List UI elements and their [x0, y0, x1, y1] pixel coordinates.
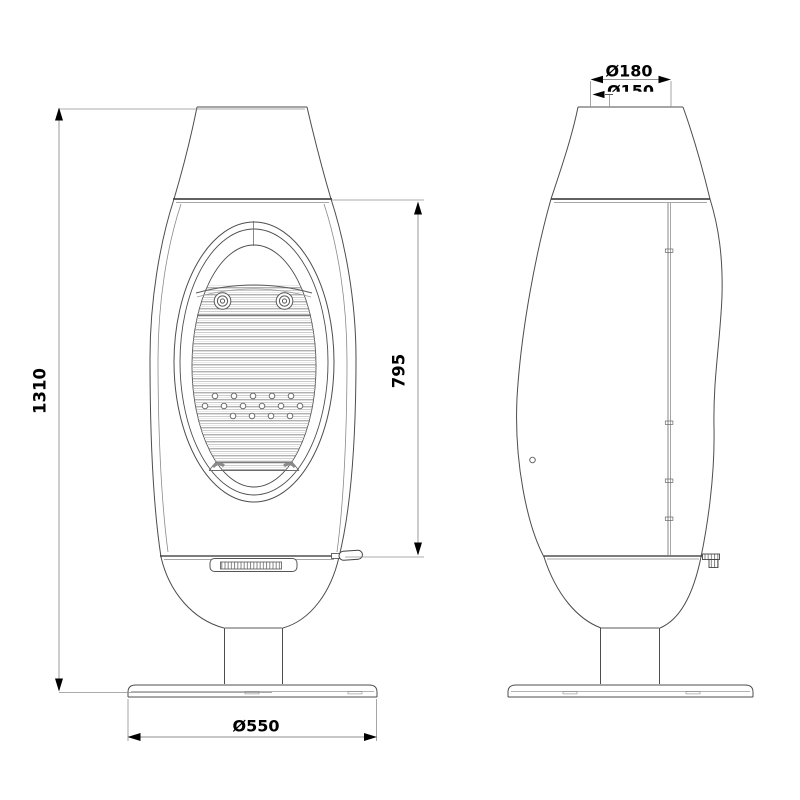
vent-hole	[259, 403, 265, 409]
side-view	[508, 107, 753, 697]
base-top-edge	[508, 685, 753, 697]
arrowhead-right	[659, 76, 672, 84]
side-body-front-edge	[517, 199, 601, 628]
front-top-cap	[174, 107, 331, 199]
vent-hole	[240, 403, 246, 409]
drawing-canvas: 1310 795 Ø550 Ø180 Ø150	[0, 0, 800, 800]
hinge-pin	[665, 479, 673, 482]
side-base-plate	[508, 685, 753, 697]
dimension-firebox-height: 795	[332, 200, 424, 557]
arrowhead-right	[364, 733, 377, 741]
technical-drawing-stove: 1310 795 Ø550 Ø180 Ø150	[0, 0, 800, 800]
front-cap-left-edge	[174, 107, 197, 199]
door-glass-louvers	[190, 284, 318, 471]
side-cap-right-edge	[683, 107, 710, 199]
arrowhead-left	[128, 733, 141, 741]
side-handle[interactable]	[703, 554, 720, 568]
handle-bracket	[332, 554, 340, 559]
knob-outer-circle	[276, 293, 293, 310]
side-latch-hole	[530, 457, 536, 463]
vent-hole	[249, 413, 255, 419]
arrowhead-left	[593, 91, 605, 98]
vent-hole	[230, 413, 236, 419]
door-knob-right	[276, 293, 293, 310]
hinge-pin	[665, 249, 673, 252]
pedestal-column	[601, 628, 660, 684]
vent-hole	[250, 393, 256, 399]
side-pedestal	[601, 628, 660, 684]
dimension-flue-inner: Ø150	[593, 82, 655, 108]
arrowhead-left	[591, 76, 604, 84]
dimension-label-flue-outer: Ø180	[606, 62, 653, 81]
arrowhead-up	[414, 202, 422, 215]
dimension-base-diameter: Ø550	[128, 699, 378, 741]
front-cap-right-edge	[307, 107, 331, 199]
louver-texture	[190, 284, 318, 471]
side-handle-hook	[709, 560, 718, 568]
vent-hole	[287, 413, 293, 419]
front-body-left-inner-edge	[158, 204, 181, 552]
arrowhead-down	[414, 543, 422, 556]
ash-lip-grille	[221, 562, 282, 569]
dimension-label-overall-height: 1310	[31, 368, 50, 414]
vent-hole	[297, 403, 303, 409]
vent-hole	[268, 413, 274, 419]
side-handle-bar[interactable]	[703, 554, 720, 560]
dimension-label-flue-inner: Ø150	[607, 82, 654, 101]
side-cap-left-edge	[551, 107, 578, 199]
vent-hole	[278, 403, 284, 409]
dimension-label-base-diameter: Ø550	[233, 717, 280, 736]
arrowhead-down	[55, 679, 63, 692]
hinge-pin	[665, 517, 673, 520]
ash-lip	[210, 559, 297, 572]
side-top-cap	[551, 107, 710, 199]
pedestal-column	[225, 628, 283, 684]
hinge-pin	[665, 421, 673, 424]
handle-grip[interactable]	[339, 550, 363, 561]
front-pedestal	[225, 628, 283, 684]
side-door-hinge	[665, 203, 673, 555]
vent-hole	[288, 393, 294, 399]
front-base-plate	[128, 685, 377, 697]
dimension-label-firebox-height: 795	[390, 354, 409, 388]
vent-hole	[231, 393, 237, 399]
side-body-shell	[517, 199, 723, 628]
vent-hole	[212, 393, 218, 399]
door-handle[interactable]	[332, 550, 363, 561]
vent-hole	[221, 403, 227, 409]
vent-hole	[202, 403, 208, 409]
front-view	[128, 107, 377, 697]
arrowhead-up	[55, 108, 63, 121]
front-door	[174, 221, 334, 502]
door-knob-left	[214, 293, 231, 310]
vent-hole	[269, 393, 275, 399]
knob-outer-circle	[214, 293, 231, 310]
